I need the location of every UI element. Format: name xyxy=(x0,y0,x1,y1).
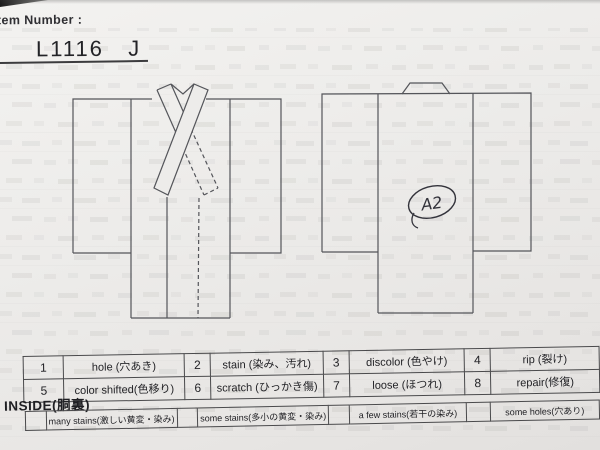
inside-checkbox-cell xyxy=(177,408,198,427)
front-kimono-diagram xyxy=(73,84,281,318)
inside-condition-table: many stains(激しい黄変・染み) some stains(多小の黄変・… xyxy=(25,399,600,431)
inside-option-label: many stains(激しい黄変・染み) xyxy=(46,408,177,430)
inside-table-wrap: many stains(激しい黄変・染み) some stains(多小の黄変・… xyxy=(25,399,600,431)
code-label: discolor (色やけ) xyxy=(349,349,465,374)
photographed-kimono-condition-sheet: { "colors": { "paper": "#edecea", "diagr… xyxy=(0,0,600,450)
code-number: 4 xyxy=(464,348,491,371)
item-number-value: L1116 J xyxy=(36,36,141,63)
code-number: 7 xyxy=(323,374,350,397)
code-number: 1 xyxy=(23,356,64,380)
inside-options-row: many stains(激しい黄変・染み) some stains(多小の黄変・… xyxy=(25,400,599,431)
code-label: loose (ほつれ) xyxy=(349,372,465,397)
inside-option-label: a few stains(若干の染み) xyxy=(349,403,467,424)
item-number-label: Item Number : xyxy=(0,13,82,28)
code-number: 6 xyxy=(185,376,212,399)
paper-edge-shadow xyxy=(0,0,600,4)
inside-option-label: some stains(多小の黄変・染み) xyxy=(198,405,329,427)
condition-codes-table: 1 hole (穴あき) 2 stain (染み、汚れ) 3 discolor … xyxy=(23,346,600,403)
code-number: 3 xyxy=(323,351,350,374)
inside-option-label: some holes(穴あり) xyxy=(490,400,600,421)
inside-checkbox-cell xyxy=(466,402,490,421)
condition-codes-table-wrap: 1 hole (穴あき) 2 stain (染み、汚れ) 3 discolor … xyxy=(23,346,600,403)
code-label: stain (染み、汚れ) xyxy=(210,351,323,376)
item-number-underline xyxy=(0,60,148,64)
code-label: scratch (ひっかき傷) xyxy=(211,374,324,399)
handwritten-grade-annotation: A2 xyxy=(405,180,460,228)
code-label: repair(修復) xyxy=(491,369,600,394)
code-number: 2 xyxy=(184,353,211,376)
grade-annotation-text: A2 xyxy=(419,193,444,215)
code-label: rip (裂け) xyxy=(490,346,599,371)
code-label: hole (穴あき) xyxy=(63,354,184,379)
kimono-diagrams: A2 xyxy=(0,70,600,370)
code-number: 8 xyxy=(465,371,492,394)
inside-checkbox-cell xyxy=(328,405,349,424)
inside-checkbox-cell xyxy=(25,411,46,430)
